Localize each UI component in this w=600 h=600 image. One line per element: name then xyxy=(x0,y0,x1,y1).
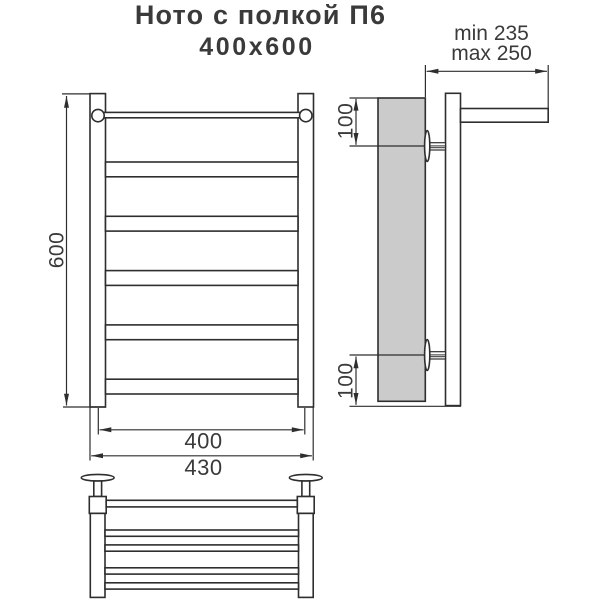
svg-text:400x600: 400x600 xyxy=(199,33,315,61)
svg-text:Ното с полкой П6: Ното с полкой П6 xyxy=(135,0,386,30)
svg-text:400: 400 xyxy=(184,428,222,453)
svg-text:430: 430 xyxy=(184,455,222,480)
svg-text:600: 600 xyxy=(46,232,69,269)
svg-text:100: 100 xyxy=(335,362,358,399)
svg-text:max 250: max 250 xyxy=(451,42,532,65)
svg-text:100: 100 xyxy=(335,103,358,140)
